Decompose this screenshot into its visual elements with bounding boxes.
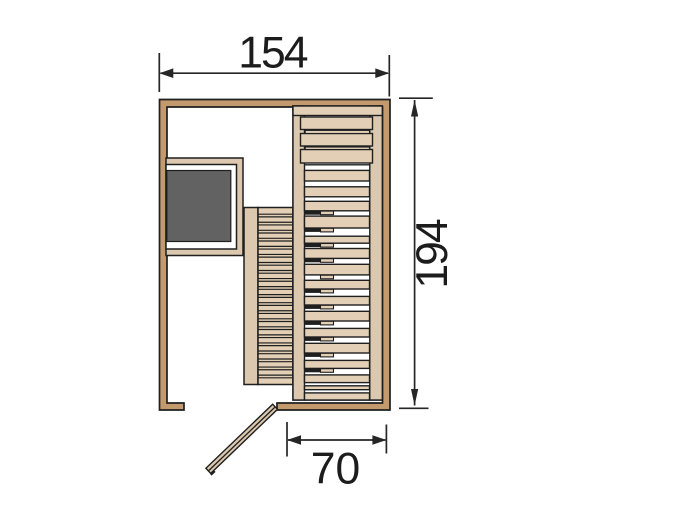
svg-text:194: 194 [408, 219, 457, 288]
svg-text:154: 154 [238, 29, 307, 78]
svg-text:70: 70 [311, 445, 361, 494]
